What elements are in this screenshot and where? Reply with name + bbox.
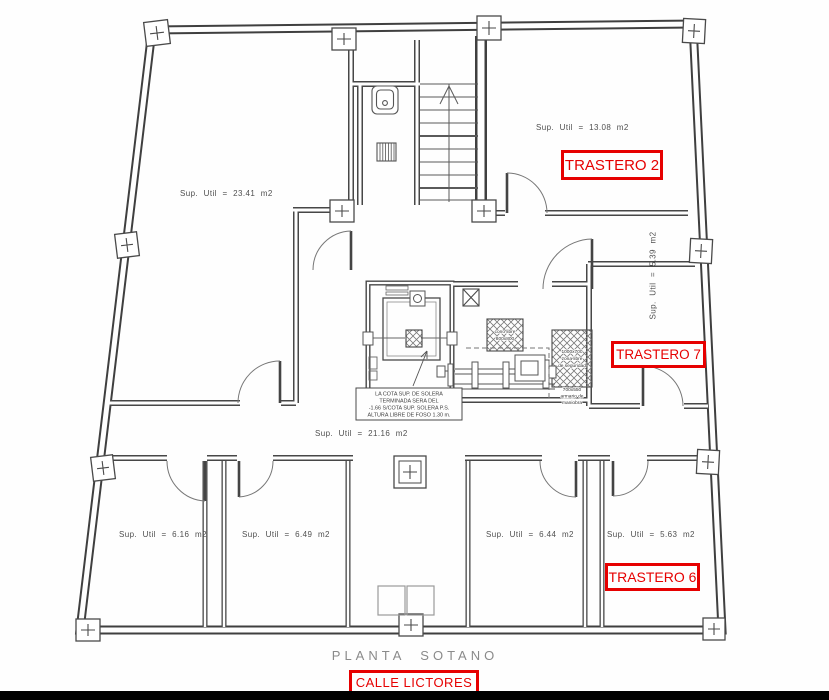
free-cone-label: cono libre [495, 329, 516, 335]
doors [167, 173, 683, 501]
safety-zone-label: zona libre [562, 356, 583, 362]
column-marker-icon [115, 232, 140, 259]
guide-rail-icon [406, 330, 422, 347]
column-marker-icon [689, 238, 712, 263]
trastero-7-highlight: TRASTERO 7 [611, 341, 706, 368]
column-marker-icon [399, 614, 423, 636]
column-marker-icon [76, 619, 100, 641]
area-label-hall: Sup. Util = 21.16 m2 [315, 429, 408, 438]
cabinet-label: armario de [561, 394, 584, 400]
radiator-icon [377, 143, 396, 161]
scan-edge-bar [0, 691, 829, 700]
vent-box-icon [463, 289, 479, 306]
column-marker-icon [330, 200, 354, 222]
free-cone-hatch [487, 319, 523, 351]
area-label-storage-large: Sup. Util = 23.41 m2 [180, 189, 273, 198]
column-markers [76, 16, 725, 641]
area-label-trastero-7: Sup. Util = 5.39 m2 [649, 223, 658, 329]
area-label-trastero-2: Sup. Util = 13.08 m2 [536, 123, 629, 132]
area-label-room-a: Sup. Util = 6.16 m2 [119, 530, 207, 539]
hydraulic-pump-icon [437, 355, 556, 389]
pit-note: LA COTA SUP. DE SOLERA TERMINADA SERA DE… [356, 351, 462, 420]
area-label-room-c: Sup. Util = 6.44 m2 [486, 530, 574, 539]
trastero-6-highlight: TRASTERO 6 [605, 563, 700, 591]
safety-zone-label: de seguridad [558, 363, 586, 369]
plan-title: PLANTA SOTANO [290, 648, 540, 663]
cabinet-label: 700x550 [563, 387, 582, 393]
machine-room [437, 289, 592, 399]
sink-icon [372, 86, 398, 114]
pit-note-line: TERMINADA SERA DEL [379, 399, 438, 405]
column-marker-icon [472, 200, 496, 222]
staircase [420, 84, 478, 202]
column-marker-icon [682, 18, 705, 43]
area-label-trastero-6: Sup. Util = 5.63 m2 [607, 530, 695, 539]
column-marker-icon [703, 618, 725, 640]
pit-note-line: LA COTA SUP. DE SOLERA [375, 392, 443, 398]
walls [80, 24, 722, 630]
pit-note-line: -1.66 S/COTA SUP. SOLERA P.S. [369, 406, 450, 412]
column-marker-icon [332, 28, 356, 50]
storage-boxes [378, 586, 434, 615]
column-marker-icon [477, 16, 501, 40]
area-label-room-b: Sup. Util = 6.49 m2 [242, 530, 330, 539]
column-marker-icon [394, 456, 426, 488]
column-marker-icon [696, 449, 719, 474]
column-marker-icon [144, 20, 171, 47]
safety-zone-label: 1000x700 [561, 349, 582, 355]
trastero-2-highlight: TRASTERO 2 [561, 150, 663, 180]
pit-note-line: ALTURA LIBRE DE FOSO 1.30 m. [368, 413, 451, 419]
free-cone-label: 800x800 [496, 336, 515, 342]
column-marker-icon [91, 455, 116, 482]
cabinet-label: maniobra [562, 400, 582, 406]
overhead-pulley-icon [410, 291, 425, 306]
floor-plan-page: LA COTA SUP. DE SOLERA TERMINADA SERA DE… [0, 0, 829, 700]
